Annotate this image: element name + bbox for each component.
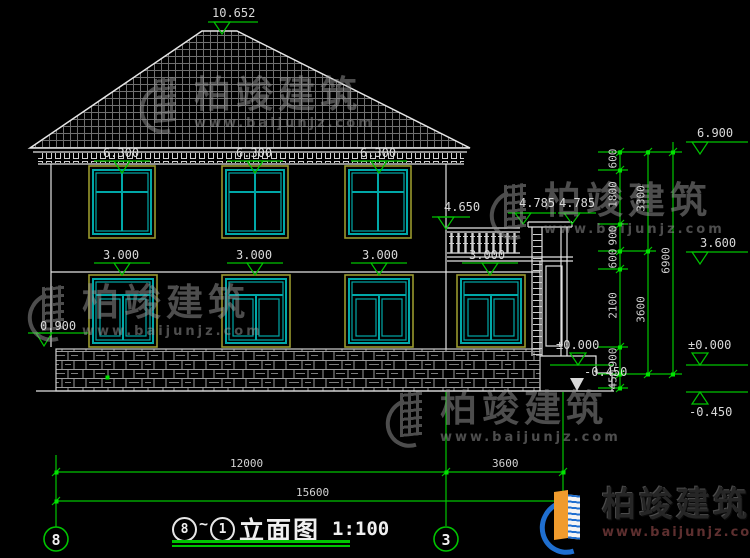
dim-right-6900: 6900 [661, 238, 672, 284]
dim-right-1800: 1800 [608, 172, 619, 218]
title-underline-thin [172, 545, 350, 547]
elevation-label-eave: 6.900 [697, 127, 733, 139]
elevation-label-floor2-window-top: 6.300 [103, 147, 139, 159]
dim-right-3600: 3600 [636, 287, 647, 333]
elevation-label-floor1-window-top: 3.000 [469, 249, 505, 261]
grade-arrow [570, 378, 584, 391]
porch-door [546, 266, 562, 346]
elevation-label-balcony-rail: 4.650 [444, 201, 480, 213]
porch-post-rungs [533, 229, 542, 355]
elevation-label-zero: ±0.000 [556, 339, 599, 351]
brand-logo: 柏竣建筑 www.baijunjz.com [538, 487, 750, 553]
dim-bottom-12000: 12000 [230, 458, 263, 470]
elevation-label-floor1-window-top: 3.000 [362, 249, 398, 261]
elevation-label-zero: ±0.000 [688, 339, 731, 351]
elevation-marker-grade-right [686, 392, 748, 404]
dim-bottom-15600: 15600 [296, 487, 329, 499]
floor1-windows [89, 275, 525, 347]
title-underline-thick [172, 540, 350, 543]
title-scale: 1:100 [332, 518, 389, 540]
title-axis-to: 1 [210, 517, 235, 542]
balcony-rail-top [447, 228, 520, 232]
elevation-markers-floor1-window-top [94, 263, 518, 275]
dim-bottom-3600: 3600 [492, 458, 519, 470]
elevation-label-floor2-window-top: 6.300 [360, 147, 396, 159]
elevation-marker-floor2-level [686, 252, 748, 264]
elevation-marker-balcony-rail [432, 217, 470, 229]
title-tilde: ~ [199, 515, 208, 533]
porch-canopy [528, 222, 572, 227]
elevation-marker-sill [28, 333, 88, 346]
elevation-label-porch-canopy: 4.785 [519, 197, 555, 209]
dim-right-600b: 600 [608, 236, 619, 282]
elevation-marker-zero-right [686, 353, 748, 365]
elevation-label-porch-canopy: 4.785 [559, 197, 595, 209]
title-axis-from: 8 [172, 517, 197, 542]
dim-right-3300: 3300 [636, 176, 647, 222]
bottom-dimension-lines [52, 392, 567, 527]
elevation-label-floor2-level: 3.600 [700, 237, 736, 249]
dim-right-450: 450 [608, 357, 619, 403]
floor2-windows [89, 166, 411, 238]
elevation-label-sill: 0.900 [40, 320, 76, 332]
dim-right-2100: 2100 [608, 283, 619, 329]
elevation-label-grade: -0.450 [689, 406, 732, 418]
elevation-label-ridge: 10.652 [212, 7, 255, 19]
brand-logo-site: www.baijunjz.com [602, 525, 750, 540]
elevation-drawing-canvas: 柏竣建筑 www.baijunjz.com 柏竣建筑 www.baijunjz.… [0, 0, 750, 558]
roof-hatch [30, 31, 470, 148]
axis-bubble-right-label: 3 [434, 531, 458, 549]
elevation-label-floor1-window-top: 3.000 [236, 249, 272, 261]
balcony-rail-bottom [447, 253, 573, 257]
elevation-label-floor2-window-top: 6.300 [236, 147, 272, 159]
cad-linework [0, 0, 750, 558]
plinth-stone-band [56, 349, 540, 391]
elevation-label-floor1-window-top: 3.000 [103, 249, 139, 261]
elevation-marker-eave [686, 142, 748, 154]
brand-logo-name: 柏竣建筑 [602, 487, 750, 523]
elevation-marker-zero-left [550, 353, 614, 365]
axis-bubble-left-label: 8 [44, 531, 68, 549]
brand-logo-icon [538, 487, 594, 553]
